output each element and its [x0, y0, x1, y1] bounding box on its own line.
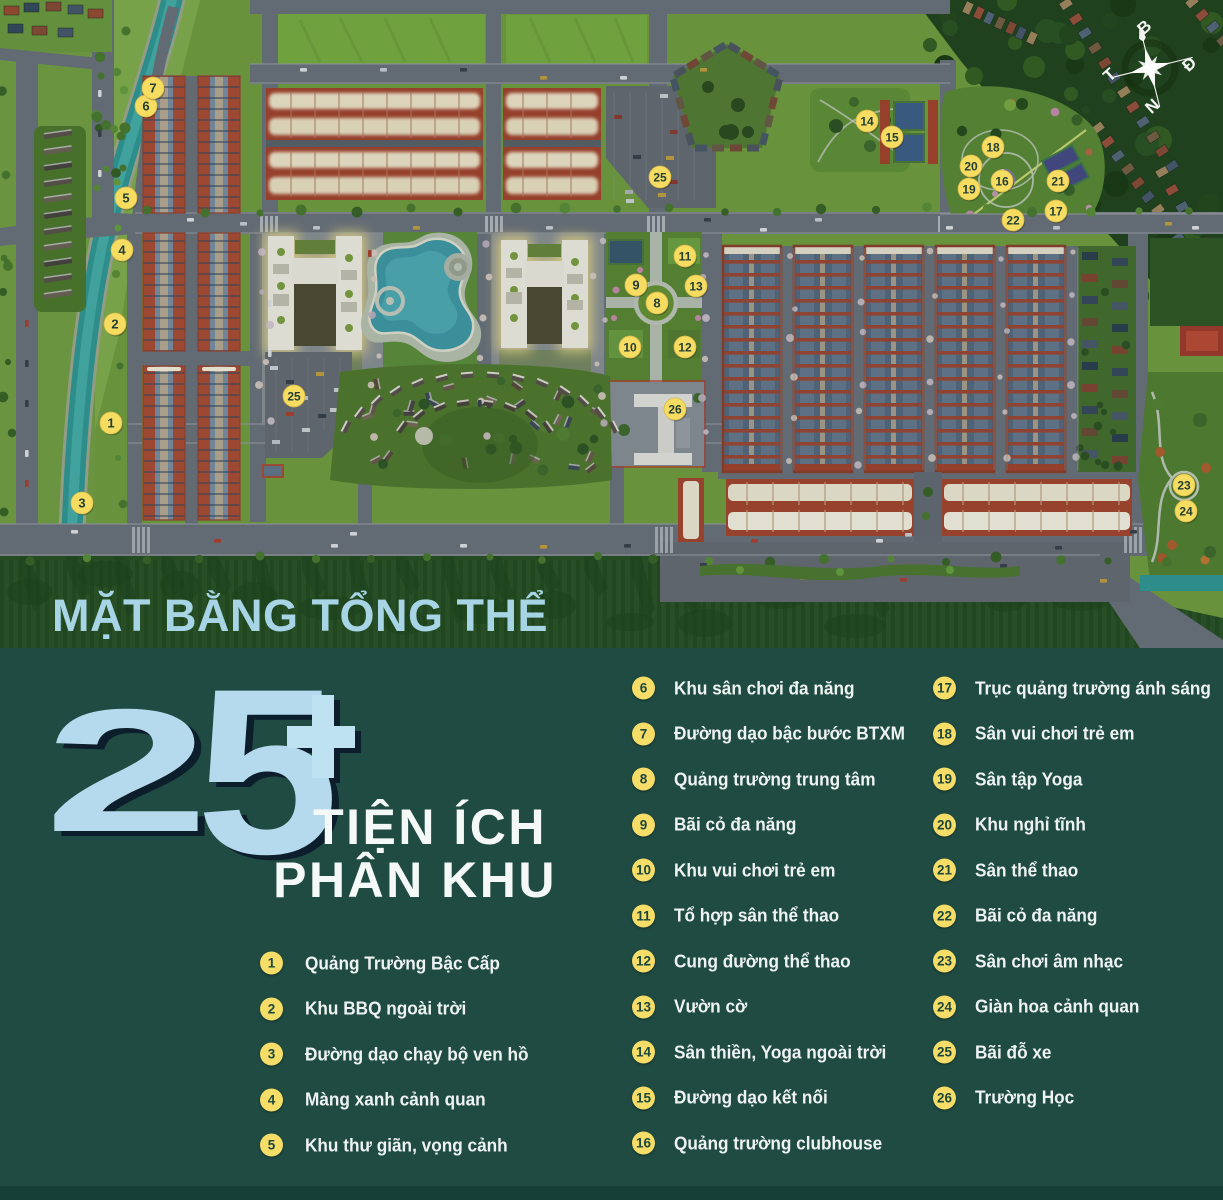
svg-text:23: 23: [1177, 478, 1191, 492]
svg-text:15: 15: [885, 130, 899, 144]
svg-text:2: 2: [111, 317, 118, 332]
svg-text:11: 11: [679, 249, 692, 263]
svg-text:13: 13: [689, 279, 703, 293]
svg-text:9: 9: [632, 278, 639, 293]
svg-text:10: 10: [623, 340, 637, 354]
svg-text:24: 24: [1179, 504, 1193, 518]
svg-text:14: 14: [860, 114, 874, 128]
svg-text:26: 26: [668, 402, 682, 416]
svg-text:19: 19: [962, 182, 976, 196]
svg-text:5: 5: [122, 191, 129, 206]
svg-text:7: 7: [149, 81, 156, 96]
svg-text:1: 1: [107, 416, 114, 431]
svg-text:16: 16: [995, 174, 1009, 188]
svg-text:20: 20: [964, 159, 978, 173]
svg-text:3: 3: [78, 496, 85, 511]
svg-text:22: 22: [1006, 213, 1020, 227]
svg-text:21: 21: [1051, 174, 1065, 188]
svg-text:8: 8: [653, 296, 660, 311]
svg-text:MẶT BẰNG TỔNG THỂ: MẶT BẰNG TỔNG THỂ: [52, 590, 548, 641]
svg-text:6: 6: [142, 99, 149, 114]
svg-text:25: 25: [653, 170, 667, 184]
svg-text:17: 17: [1049, 204, 1063, 218]
svg-text:12: 12: [678, 340, 692, 354]
svg-text:4: 4: [118, 243, 126, 258]
svg-text:25: 25: [287, 389, 301, 403]
svg-text:18: 18: [986, 140, 1000, 154]
